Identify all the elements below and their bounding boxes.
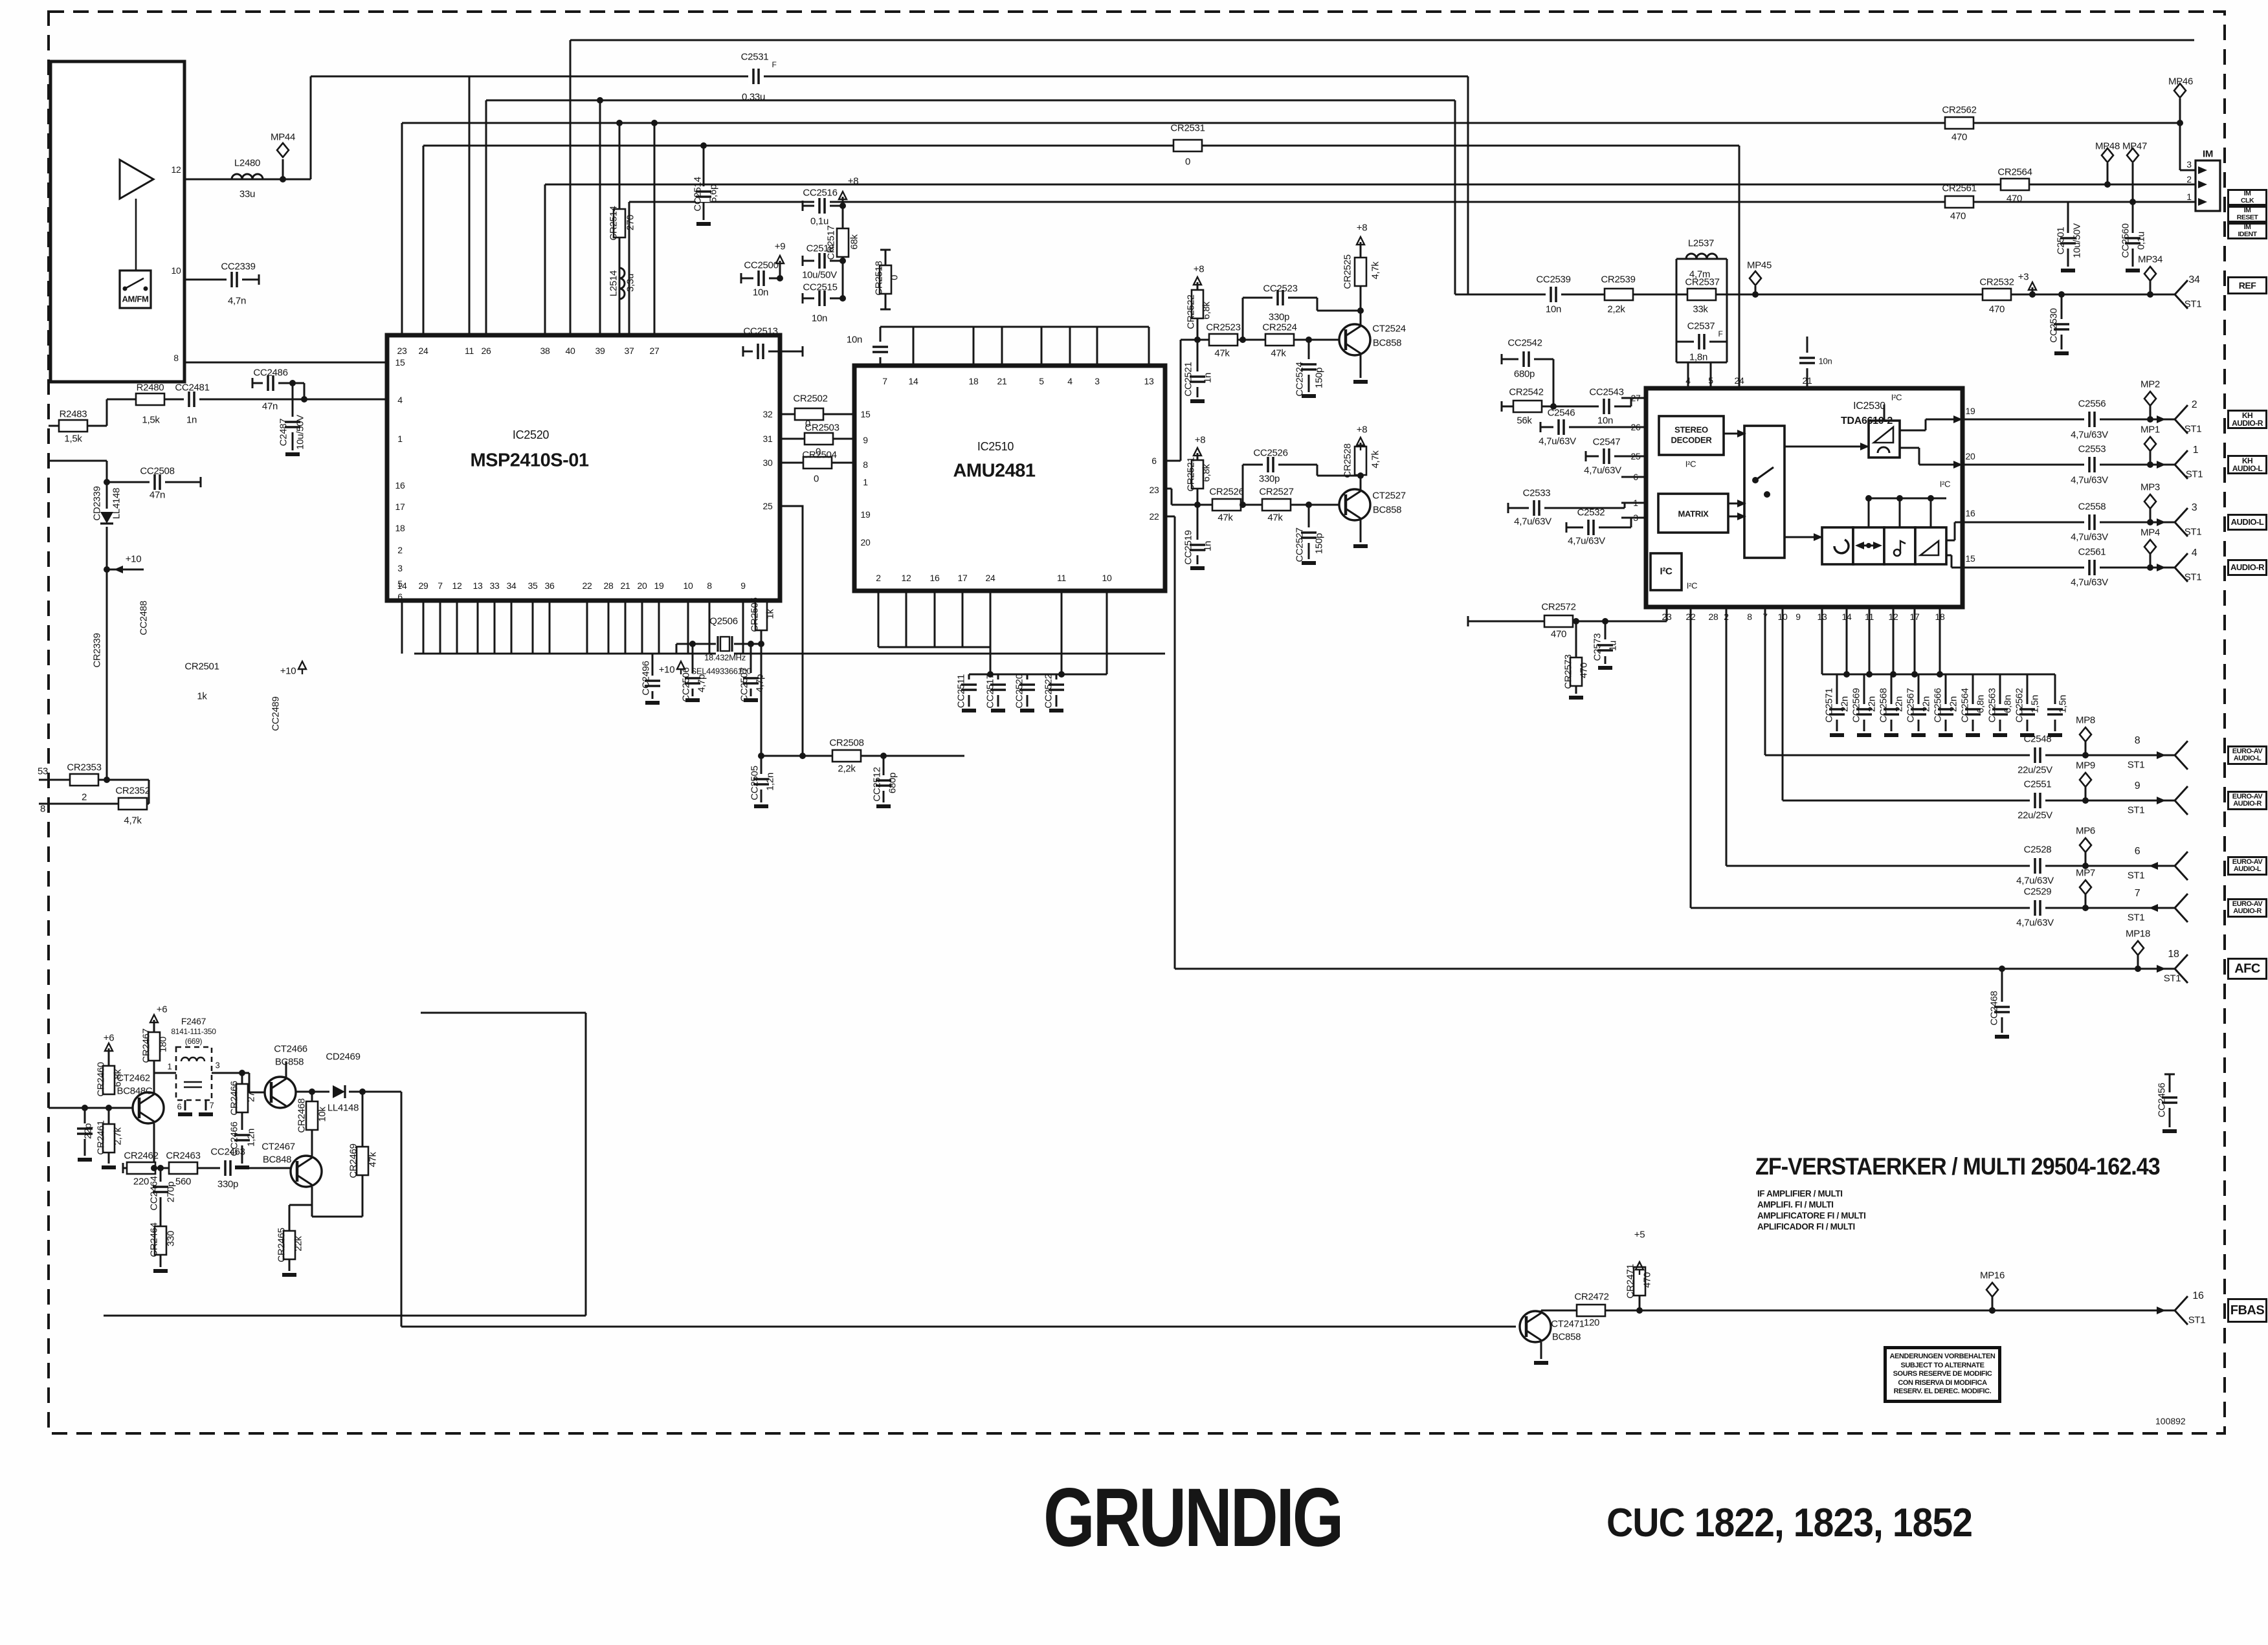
measure-point-label: MP9 [2076,761,2095,771]
component-label: CD2339 [93,486,102,520]
component-label: 1,2n [247,1129,256,1147]
ic-pin: 5 [397,579,403,588]
ground [1598,666,1612,670]
ground [1353,380,1368,384]
component-label: CR2572 [1541,602,1575,612]
ic-pin: 3 [397,564,403,573]
ground [178,1112,192,1116]
component-label: 330p [1269,313,1289,322]
resistor [1513,401,1542,412]
component-label: CC2514 [693,177,703,211]
ic-pin: 9 [1795,612,1801,621]
ic-pin: 11 [1865,612,1874,621]
component-label: 3 [216,1061,220,1070]
component-label: I²C [1660,567,1672,577]
ic-pin: 5 [1708,376,1713,385]
ic-pin: 13 [1144,377,1154,386]
ground [1569,696,1583,700]
measure-point-icon [2132,941,2144,955]
capacitor [150,474,165,490]
measure-point-label: MP8 [2076,716,2095,725]
volume-block [1915,527,1946,564]
connector-box-euro-av-audio-r-out: EURO-AVAUDIO-R [2227,791,2267,810]
component-label: IM [2203,149,2213,159]
connector-label: AFC [2234,962,2260,975]
component-label: 10n [1819,357,1832,366]
ic-pin: 8 [707,581,712,590]
measure-point-icon [277,143,289,157]
junction-dot [1306,337,1312,343]
ic-pin: 21 [621,581,630,590]
ic-pin: 11 [465,346,474,355]
resistor [832,750,861,762]
capacitor [1599,448,1614,464]
component-label: 4,7u/63V [2071,578,2108,588]
ic-pin: 37 [625,346,634,355]
ic-pin: 7 [438,581,443,590]
flow-arrow-icon [2157,518,2166,526]
component-label: CT2462 [117,1074,150,1083]
component-label: MP45 [1747,261,1772,270]
ic-pin: 27 [650,346,660,355]
flow-arrow-icon [2149,904,2158,912]
resistor [1945,196,1973,208]
wire [2175,894,2188,908]
ic-pin: 16 [930,573,940,582]
ground [235,1165,249,1169]
ground [962,709,976,712]
component-label: 5,6p [709,184,718,203]
junction-dot [689,641,696,647]
component-label: F [772,61,776,69]
wire [2175,1310,2188,1325]
junction-dot [2082,797,2089,804]
component-label: F2467 [181,1017,206,1026]
ic-pin: 15 [1966,554,1975,563]
component-label: CT2524 [1372,324,1406,334]
component-label: CR2504 [802,450,836,460]
component-label: CR2532 [1979,278,2014,287]
ground [1939,733,1953,737]
ic-pin: 30 [763,458,773,467]
flow-arrow-icon [2157,564,2166,571]
ic-pin: 9 [863,436,868,445]
ic-pin: 31 [763,434,773,443]
component-label: 33u [239,190,255,199]
st1-pin-number: 8 [2135,736,2140,746]
resistor [306,1101,318,1130]
component-label: MP47 [2122,142,2147,151]
connector-label: AUDIO-R [2230,563,2264,571]
ic-pin: 8 [1747,612,1752,621]
resistor [1605,289,1633,300]
component-label: 10u/50V [2073,223,2082,258]
component-label: 22n [1949,696,1959,712]
component-label: CC2567 [1906,688,1916,722]
component-label: CC2500 [744,261,778,270]
component-label: CR2518 [874,261,884,295]
ic-pin: 20 [638,581,647,590]
component-label: CC2515 [803,283,837,293]
component-label: 47k [1271,349,1285,359]
capacitor [2084,514,2100,530]
component-label: 180 [159,1037,168,1052]
component-label: CR2531 [1170,124,1205,133]
component-label: 4,7u/63V [2071,430,2108,440]
component-label: 4,7p [755,674,765,692]
switch-icon [1764,491,1770,498]
ground [1020,709,1034,712]
component-label: C2558 [2078,502,2106,512]
measure-point-icon [2080,838,2091,852]
resistor [2001,179,2029,190]
component-label: 47k [368,1152,378,1167]
wire [2175,508,2188,522]
resistor [1355,258,1366,286]
component-label: C2556 [2078,399,2106,409]
component-label: CR2339 [93,633,102,667]
junction-dot [104,479,110,485]
resistor [1687,289,1716,300]
junction-dot [1928,495,1934,502]
component-label: 47k [1267,513,1282,523]
ic-pin: 17 [395,502,405,511]
capacitor [2030,900,2045,916]
component-label: CR2503 [805,423,839,433]
st1-pin-number: 1 [2193,445,2199,456]
component-label: 7 [210,1101,214,1110]
ground [153,1269,168,1273]
component-label: 4,7k [1371,261,1381,279]
component-label: L2514 [609,270,619,296]
wire [2175,741,2188,755]
st1-pin-number: 7 [2135,889,2140,899]
wire [2175,450,2188,465]
junction-dot [280,176,286,182]
measure-point-label: MP4 [2140,528,2160,538]
connector-box-ref: REF [2227,276,2267,294]
junction-dot [1989,1307,1996,1314]
st1-connector-label: ST1 [2185,300,2202,309]
component-label: CR2501 [184,662,219,672]
ic-pin: 19 [861,510,871,519]
measure-point-icon [2144,437,2156,451]
ground [2061,269,2075,272]
ic-pin: 21 [997,377,1007,386]
component-label: BC858 [1373,338,1401,348]
component-label: BC858 [275,1057,304,1067]
component-label: CR2564 [1997,168,2032,177]
ic-pin: 19 [654,581,664,590]
ic-pin: 1 [863,478,868,487]
connector-box-kh-audio-r: KHAUDIO-R [2227,410,2267,429]
ic-pin: 10 [1102,573,1112,582]
junction-dot [104,566,110,573]
component-label: CR2467 [142,1028,151,1063]
measure-point-icon [2144,494,2156,509]
junction-dot [597,97,603,104]
ic-pin: 17 [958,573,968,582]
capacitor [1263,457,1278,472]
connector-box-im-reset: IMRESET [2227,206,2267,223]
ic-pin: 8 [863,460,868,469]
component-label: AM/FM [122,295,148,304]
component-label: 47n [150,491,165,500]
component-label: 22k [294,1236,304,1251]
resistor [1262,499,1291,511]
junction-dot [758,753,764,759]
component-label: 270p [166,1182,176,1202]
component-label: 680p [888,773,898,793]
capacitor [873,342,888,357]
component-label: C2501 [2056,227,2066,255]
component-label: 22n [1922,696,1931,712]
component-label: CC2481 [175,383,209,393]
junction-dot [2147,519,2153,525]
component-label: 2,7k [113,1127,123,1145]
junction-dot [2129,199,2136,205]
component-label: 470 [1950,212,1966,221]
component-label: CC2463 [210,1147,245,1157]
resistor [837,228,849,257]
component-label: CC2464 [150,1176,159,1210]
junction-dot [748,641,754,647]
ic-pin: 2 [1724,612,1729,621]
component-label: CR2542 [1509,388,1543,397]
component-label: +9 [775,242,786,252]
ic2510-name: AMU2481 [953,461,1035,482]
component-label: CR2353 [67,763,101,773]
component-label: 470 [1951,133,1967,142]
ground [1534,1361,1548,1365]
junction-dot [1194,502,1201,508]
component-label: 4,7p [697,674,707,692]
junction-dot [700,142,707,149]
component-label: 560 [175,1177,191,1187]
ic-pin: 6 [1151,456,1157,465]
component-label: I²C [1940,480,1950,489]
component-label: 1,5n [2030,695,2040,713]
junction-dot [1194,337,1201,343]
ground [1190,399,1205,403]
ic-pin: 4 [1067,377,1073,386]
ic-pin: 33 [490,581,500,590]
measure-point-icon [2144,392,2156,406]
component-label: 470 [1989,305,2005,315]
ic-pin: 20 [861,538,871,547]
ground [282,1273,296,1277]
junction-dot [1752,291,1759,298]
source-switch-block [1744,426,1784,558]
resistor [1983,289,2011,300]
component-label: CC2522 [1044,674,1054,708]
ic-pin: 18 [1935,612,1945,621]
component-label: BC858 [1373,505,1401,515]
connector-label: AUDIO-L [2232,465,2263,472]
component-label: CC2516 [803,188,837,198]
capacitor [1583,520,1599,535]
junction-dot [1890,671,1896,678]
component-label: CR2508 [829,738,863,748]
component-label: 2 [2186,175,2192,184]
flow-arrow-icon [2157,415,2166,423]
connector-label: AUDIO-R [2232,419,2263,427]
junction-dot [2029,291,2036,298]
resistor [118,798,147,810]
component-label: CR2521 [1186,457,1196,491]
connector-box-fbas: FBAS [2227,1298,2267,1323]
capacitor [1553,419,1569,435]
ic-pin: 38 [540,346,550,355]
component-label: CR2465 [277,1228,287,1262]
capacitor [2030,793,2045,808]
junction-dot [289,380,296,386]
component-label: 22n [1895,696,1904,712]
connector-label: AUDIO-R [2233,800,2262,808]
ic-pin: 12 [902,573,911,582]
component-label: 1,5n [2058,695,2068,713]
st1-pin-number: 34 [2188,275,2199,285]
resistor [1212,499,1241,511]
component-label: BC848 [263,1155,291,1165]
component-label: CR2523 [1206,323,1240,333]
measure-point-icon [2144,540,2156,554]
ic-pin: 13 [1818,612,1827,621]
component-label: 1 [2186,192,2192,201]
component-label: CD2469 [326,1052,360,1062]
junction-dot [301,396,307,403]
ic-pin: 25 [1631,452,1641,461]
component-label: R2483 [60,410,87,419]
junction-dot [151,1165,157,1171]
component-label: 4,7k [1371,450,1381,468]
ic2530-name: TDA6610-2 [1841,416,1893,426]
junction-dot [1240,502,1246,508]
ic-pin: 25 [763,502,773,511]
component-label: CC2496 [641,661,651,695]
ic2530-ref: IC2530 [1853,401,1885,412]
schematic-subtitle: AMPLIFI. FI / MULTI [1757,1199,1834,1209]
junction-dot [2147,461,2153,468]
ic-pin: 4 [397,395,403,404]
measure-point-icon [2080,727,2091,742]
component-label: 1,8n [1689,353,1707,362]
junction-dot [1058,671,1065,678]
ic-pin: 20 [1966,452,1975,461]
ground [2162,1129,2177,1133]
connector-label: AUDIO-R [2233,908,2262,915]
component-label: 12 [172,165,181,174]
component-label: CR2352 [115,786,150,796]
flow-arrow-icon [2157,965,2166,973]
component-label: CC2560 [2121,223,2131,258]
component-label: CR2469 [349,1143,359,1178]
component-label: C2546 [1548,408,1575,418]
component-label: 4,7u/63V [1514,517,1551,527]
junction-dot [839,258,846,264]
st1-pin-number: 18 [2168,949,2179,960]
page-border [49,12,2225,1433]
component-label: 47n [262,402,278,412]
component-label: CC2506 [682,667,691,701]
crystal [720,637,729,651]
junction-dot [1240,337,1246,343]
connector-box-im-clk: IMCLK [2227,189,2267,206]
component-label: 4,7u/63V [2071,533,2108,542]
st1-pin-number: 4 [2192,548,2197,558]
measure-point-label: MP6 [2076,826,2095,836]
component-label: 4,7u/63V [2016,876,2054,886]
ic-pin: 22 [583,581,592,590]
ground [78,1158,92,1162]
junction-dot [82,1105,88,1111]
component-label: 1,5k [64,434,82,444]
component-label: C2553 [2078,445,2106,454]
resistor [1577,1305,1605,1316]
component-label: CR2468 [297,1098,307,1132]
component-label: CC2511 [957,674,966,708]
junction-dot [1636,1307,1643,1314]
junction-dot [359,1088,366,1095]
component-label: CR2472 [1574,1292,1608,1302]
ground [696,222,711,226]
component-label: 8 [173,353,179,362]
component-label: LL4148 [112,488,122,519]
ground [285,452,300,456]
revision-notice-box: AENDERUNGEN VORBEHALTEN SUBJECT TO ALTER… [1884,1346,2001,1403]
measure-point-label: MP16 [1980,1271,2005,1281]
ic-pin: 12 [1889,612,1898,621]
component-label: CC2569 [1852,688,1862,722]
ic-pin: 16 [395,481,405,490]
component-label: CC2505 [750,766,760,800]
measure-point-icon [2144,267,2156,281]
ground [1911,733,1926,737]
capacitor [753,344,768,359]
component-label: 2 [82,793,87,802]
junction-dot [1865,495,1872,502]
st1-pin-number: 16 [2192,1291,2203,1301]
junction-dot [1999,966,2005,972]
st1-pin-number: 6 [2135,846,2140,857]
connector-box-euro-av-audio-l-out: EURO-AVAUDIO-L [2227,745,2267,765]
ground [199,1112,213,1116]
st1-connector-label: ST1 [2185,573,2202,582]
component-label: CC2562 [2015,688,2025,722]
ic-pin: 29 [419,581,428,590]
ground [1190,566,1205,570]
component-label: 1u [1608,641,1618,651]
junction-dot [1866,671,1873,678]
notice-line: RESERV. EL DEREC. MODIFIC. [1894,1387,1992,1397]
component-label: 220 [133,1177,149,1187]
capacitor [1694,334,1709,349]
ic-pin: 18 [395,524,405,533]
component-label: CC2519 [1184,530,1194,564]
schematic-subtitle: IF AMPLIFIER / MULTI [1757,1188,1843,1198]
ic-pin: 26 [1631,423,1641,432]
junction-dot [2104,181,2111,188]
component-label: 0 [890,275,900,280]
component-label: C2547 [1593,437,1621,447]
junction-dot [651,120,658,126]
component-label: (669) [185,1037,203,1045]
component-label: C2531 [741,52,769,62]
connector-label: REF [2239,281,2256,290]
ic-pin: 5 [1039,377,1044,386]
chassis-models: CUC 1822, 1823, 1852 [1606,1500,1972,1546]
ground [991,709,1005,712]
